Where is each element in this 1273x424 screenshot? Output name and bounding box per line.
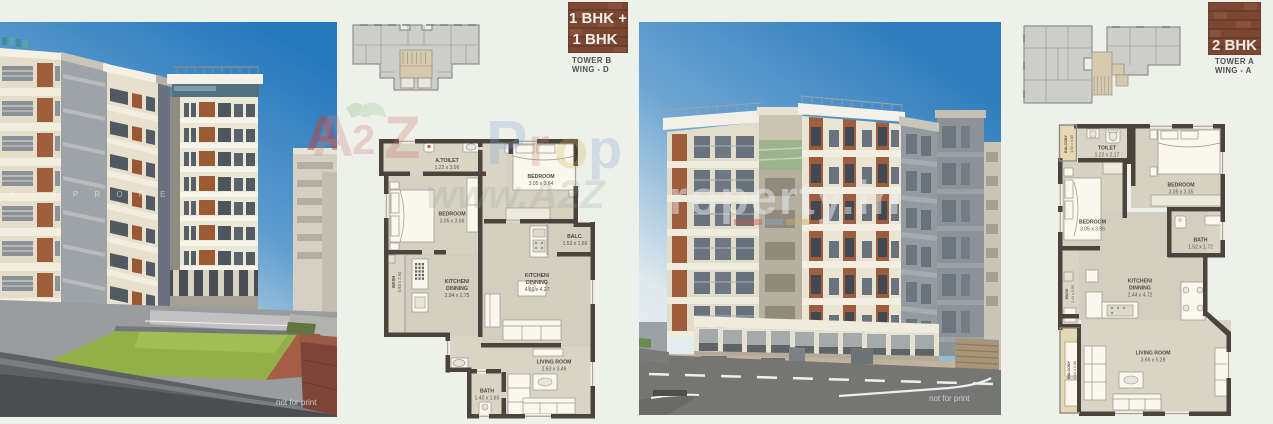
svg-text:BATH: BATH (480, 389, 494, 395)
svg-text:BEDROOM: BEDROOM (527, 174, 554, 180)
svg-text:1 BHK +: 1 BHK + (569, 10, 627, 27)
svg-text:4.60 x 4.27: 4.60 x 4.27 (525, 287, 550, 293)
svg-text:A: A (306, 108, 337, 161)
svg-text:1.52 x 1.72: 1.52 x 1.72 (1188, 245, 1213, 251)
svg-text:DINNING: DINNING (526, 280, 548, 286)
svg-text:BATH: BATH (1193, 238, 1207, 244)
svg-text:1.40 x 1.60: 1.40 x 1.60 (475, 396, 500, 402)
svg-text:KITCHEN/: KITCHEN/ (445, 279, 470, 285)
svg-text:2 BHK: 2 BHK (1212, 37, 1257, 54)
svg-text:1.53 x 0.80: 1.53 x 0.80 (1070, 135, 1074, 153)
svg-text:1.22 x 2.17: 1.22 x 2.17 (1095, 153, 1120, 159)
svg-text:3.05 x 3.35: 3.05 x 3.35 (1169, 190, 1194, 196)
svg-text:TOILET: TOILET (1098, 146, 1117, 152)
svg-text:0.93 x 2.94: 0.93 x 2.94 (397, 271, 402, 292)
svg-text:3.05 x 3.64: 3.05 x 3.64 (529, 181, 554, 187)
svg-text:3.05 x 3.66: 3.05 x 3.66 (440, 219, 465, 225)
svg-text:2.44 x 0.98: 2.44 x 0.98 (1073, 361, 1077, 379)
svg-text:1.22 x 3.96: 1.22 x 3.96 (435, 165, 460, 171)
svg-text:BEDROOM: BEDROOM (1079, 220, 1106, 226)
svg-text:2.94 x 2.75: 2.94 x 2.75 (445, 293, 470, 299)
svg-text:BALC.: BALC. (567, 234, 583, 240)
svg-text:BALCONY: BALCONY (1067, 361, 1071, 379)
svg-text:DINNING: DINNING (446, 286, 468, 292)
svg-text:LIVING ROOM: LIVING ROOM (537, 360, 572, 366)
svg-text:KITCHEN/: KITCHEN/ (1128, 279, 1153, 285)
svg-text:A 2 Z P R O P E R T Y: A 2 Z P R O P E R T Y (10, 190, 237, 199)
svg-text:2: 2 (352, 116, 375, 163)
svg-text:1.53 x 1.66: 1.53 x 1.66 (563, 241, 588, 247)
svg-text:2.44 x 0.90: 2.44 x 0.90 (1071, 285, 1075, 303)
svg-text:2.63 x 3.46: 2.63 x 3.46 (542, 367, 567, 373)
svg-text:WASH: WASH (391, 276, 396, 289)
svg-text:3.05 x 3.96: 3.05 x 3.96 (1080, 227, 1105, 233)
svg-text:3.66 x 5.28: 3.66 x 5.28 (1141, 358, 1166, 364)
svg-text:1 BHK: 1 BHK (572, 31, 617, 48)
svg-text:BEDROOM: BEDROOM (1167, 183, 1194, 189)
svg-text:DINNING: DINNING (1129, 286, 1151, 292)
svg-text:A.TOILET: A.TOILET (435, 158, 459, 164)
svg-text:BEDROOM: BEDROOM (438, 212, 465, 218)
svg-text:LIVING ROOM: LIVING ROOM (1136, 351, 1171, 357)
svg-text:BALCONY: BALCONY (1064, 135, 1068, 153)
svg-text:2.44 x 4.72: 2.44 x 4.72 (1128, 293, 1153, 299)
svg-text:WASH: WASH (1065, 288, 1069, 299)
svg-text:not for print: not for print (276, 398, 317, 407)
svg-text:KITCHEN/: KITCHEN/ (525, 273, 550, 279)
svg-text:roperty.in: roperty.in (669, 171, 902, 224)
svg-text:not for print: not for print (929, 394, 970, 403)
